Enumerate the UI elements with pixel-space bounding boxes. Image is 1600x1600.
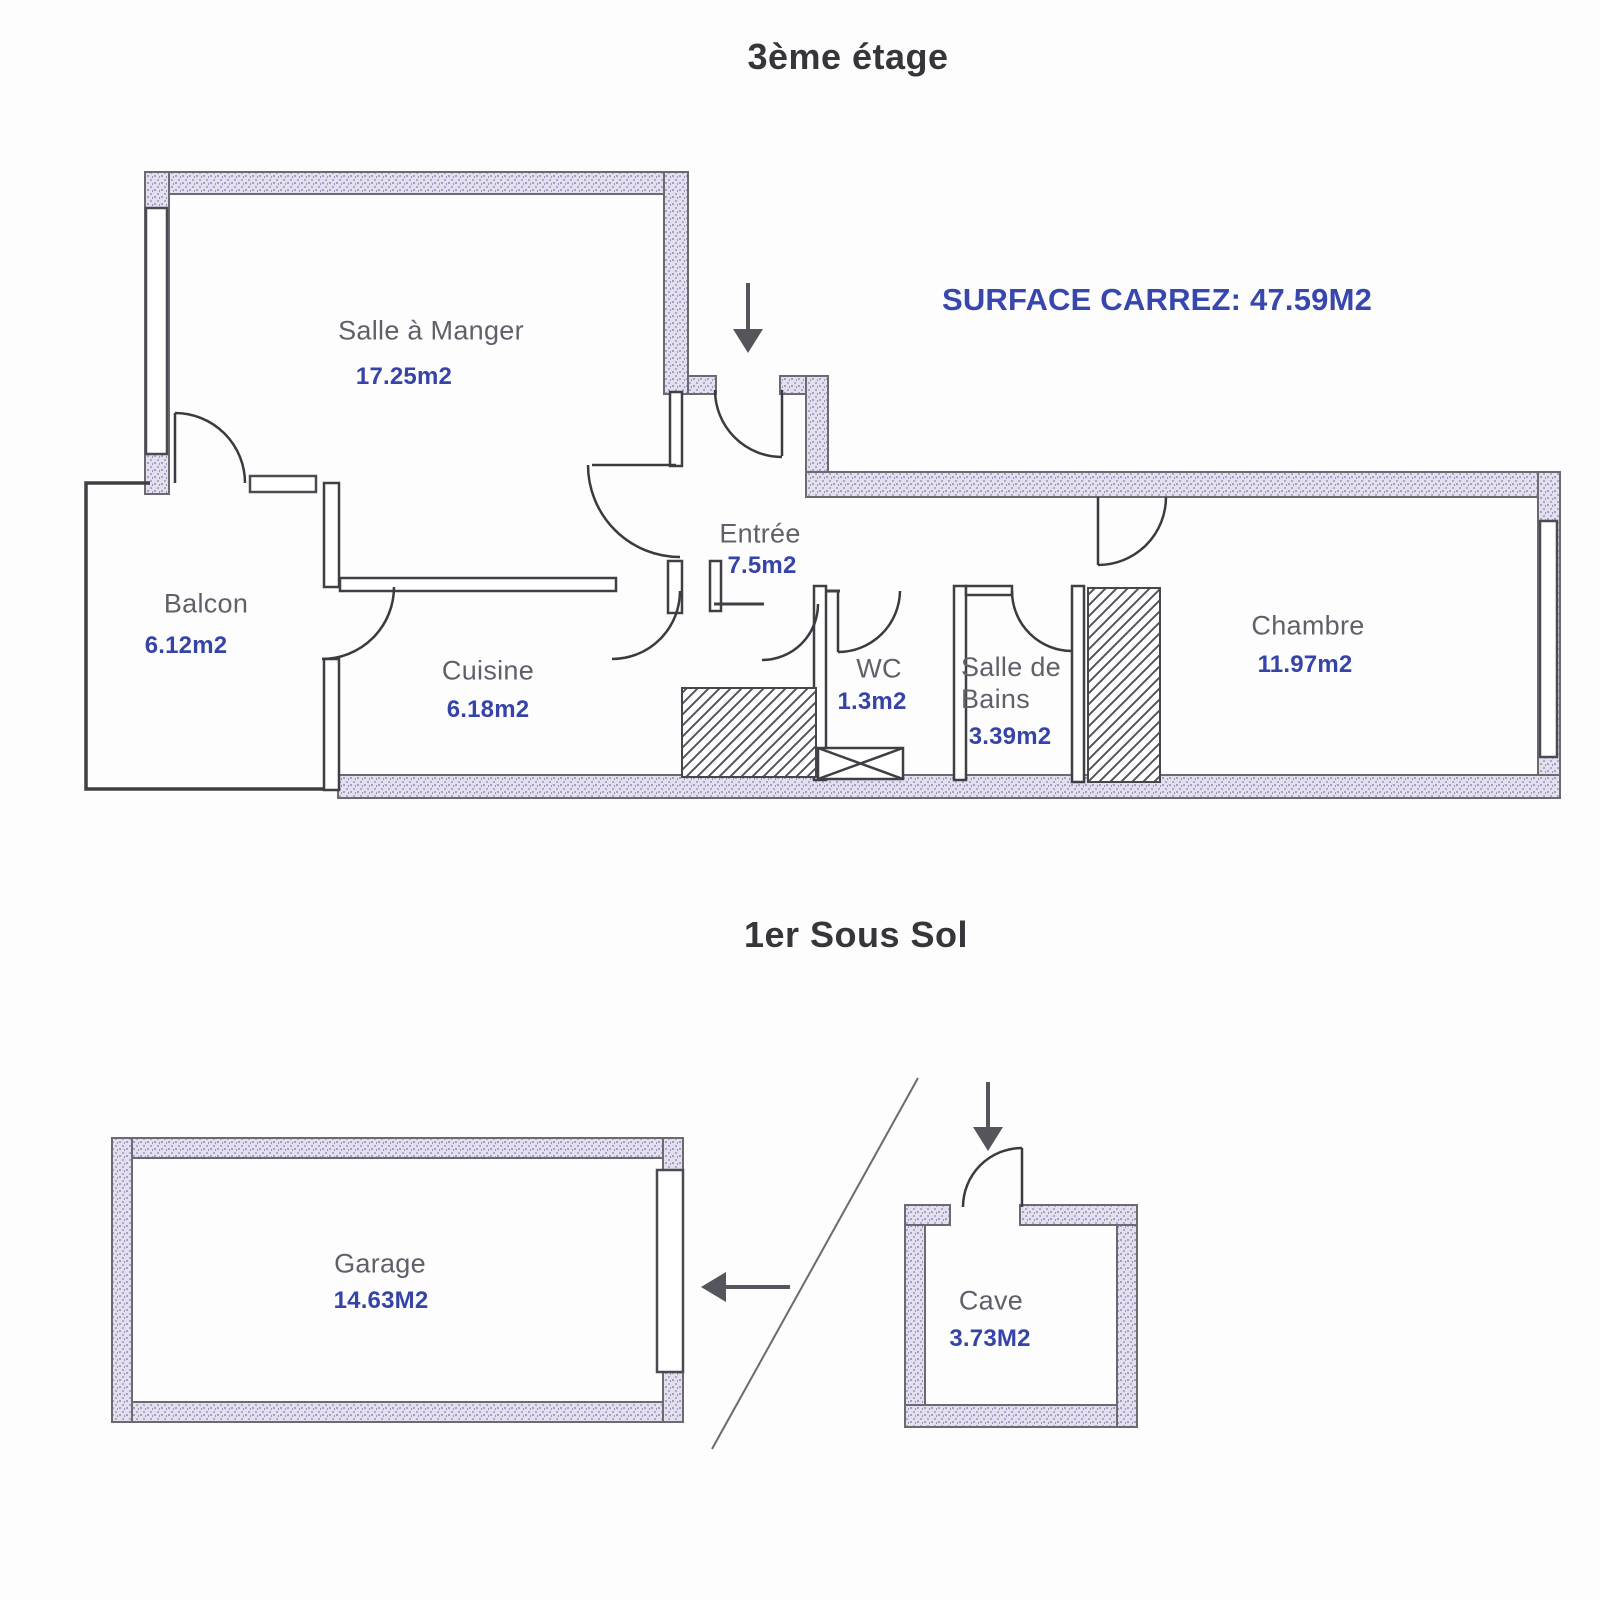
room-label-salle-a-manger: Salle à Manger (338, 316, 524, 347)
room-label-salle-de-bains: Salle de Bains (961, 652, 1079, 716)
room-label-chambre: Chambre (1251, 611, 1364, 642)
room-area-salle-a-manger: 17.25m2 (356, 363, 452, 391)
room-label-garage: Garage (334, 1249, 426, 1280)
door-arc-placard (762, 604, 818, 660)
hatched-placard-chambre (1088, 588, 1160, 782)
walls-garage (112, 1138, 683, 1422)
room-label-cave: Cave (959, 1286, 1023, 1317)
entrance-arrow-icon (733, 283, 763, 353)
surface-carrez-note: SURFACE CARREZ: 47.59M2 (942, 282, 1372, 318)
garage-direction-arrow-icon (701, 1272, 790, 1302)
garage-door (657, 1170, 683, 1372)
room-area-chambre: 11.97m2 (1258, 651, 1353, 679)
room-label-cuisine: Cuisine (442, 656, 534, 687)
room-area-garage: 14.63M2 (334, 1287, 429, 1315)
floor3-title: 3ème étage (747, 36, 948, 78)
hatched-areas-3eme (682, 588, 1160, 782)
floorplan-graphics (0, 0, 1600, 1600)
window-chambre (1540, 521, 1557, 757)
door-cave (963, 1148, 1022, 1207)
room-area-wc: 1.3m2 (837, 688, 906, 716)
basement-title: 1er Sous Sol (744, 914, 968, 956)
door-arc-salle-de-bains (1012, 591, 1072, 651)
room-label-wc: WC (856, 654, 902, 685)
room-area-cave: 3.73M2 (949, 1325, 1030, 1353)
hatched-placard-entree (682, 688, 816, 777)
room-area-cuisine: 6.18m2 (447, 696, 530, 724)
ramp-line (712, 1078, 918, 1449)
cave-entrance-arrow-icon (973, 1082, 1003, 1151)
room-label-balcon: Balcon (164, 589, 248, 620)
door-arc-balcon-cuisine (322, 587, 394, 659)
duct-box-wc (818, 748, 903, 779)
window-balcon (250, 476, 316, 492)
room-area-balcon: 6.12m2 (145, 632, 228, 660)
room-label-entree: Entrée (719, 519, 800, 550)
room-area-salle-de-bains: 3.39m2 (969, 723, 1052, 751)
room-area-entree: 7.5m2 (727, 552, 796, 580)
floor-plan-document: 3ème étage SURFACE CARREZ: 47.59M2 Salle… (0, 0, 1600, 1600)
window-salle-a-manger (146, 208, 167, 454)
